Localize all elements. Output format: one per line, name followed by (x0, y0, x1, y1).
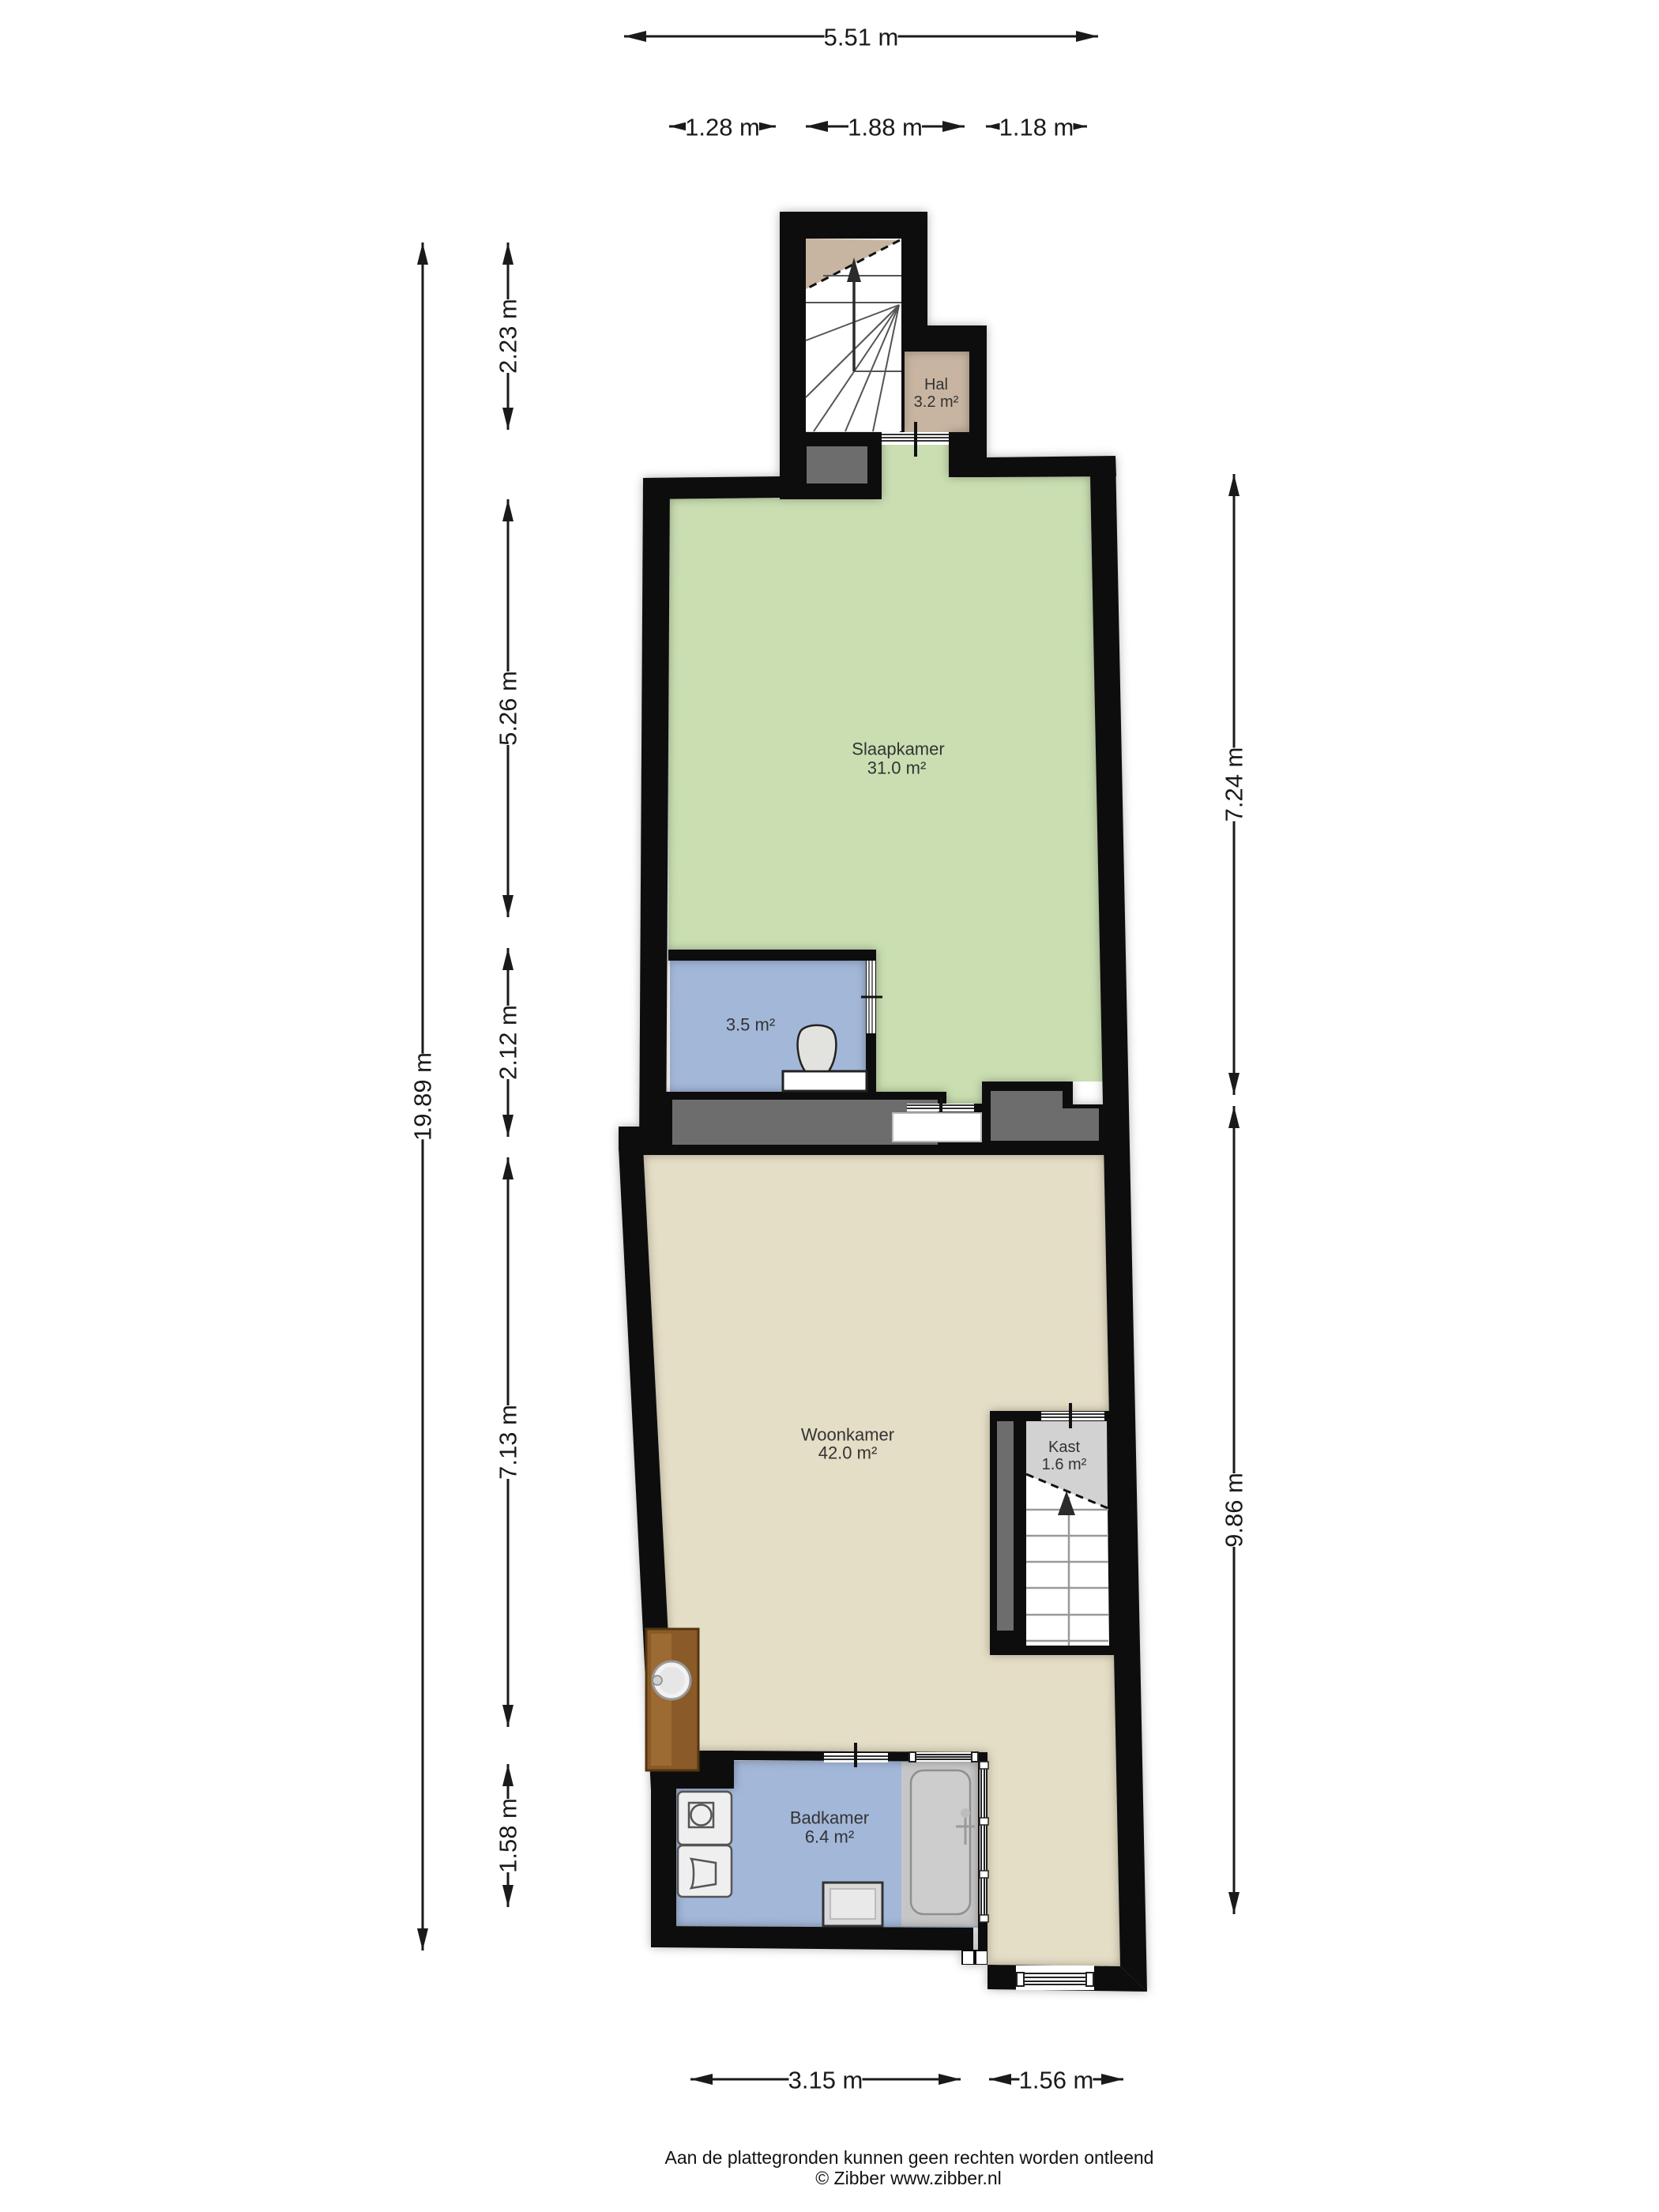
svg-text:5.51 m: 5.51 m (824, 24, 899, 51)
svg-text:1.6 m²: 1.6 m² (1042, 1456, 1087, 1473)
svg-text:© Zibber www.zibber.nl: © Zibber www.zibber.nl (815, 2168, 1002, 2188)
svg-text:3.2 m²: 3.2 m² (914, 393, 959, 411)
svg-text:1.56 m: 1.56 m (1019, 2067, 1094, 2094)
svg-text:3.5 m²: 3.5 m² (726, 1015, 775, 1035)
svg-text:31.0 m²: 31.0 m² (867, 758, 927, 778)
svg-text:Badkamer: Badkamer (790, 1808, 869, 1828)
svg-text:2.23 m: 2.23 m (495, 299, 522, 374)
svg-text:Hal: Hal (924, 376, 948, 393)
svg-text:1.18 m: 1.18 m (999, 114, 1074, 141)
svg-text:42.0 m²: 42.0 m² (818, 1443, 878, 1463)
svg-text:Woonkamer: Woonkamer (801, 1425, 894, 1445)
svg-text:Slaapkamer: Slaapkamer (852, 739, 944, 759)
svg-text:7.13 m: 7.13 m (495, 1405, 522, 1480)
svg-text:Kast: Kast (1048, 1439, 1080, 1456)
svg-text:3.15 m: 3.15 m (788, 2067, 863, 2094)
svg-text:Aan de plattegronden kunnen ge: Aan de plattegronden kunnen geen rechten… (665, 2147, 1154, 2168)
svg-text:1.28 m: 1.28 m (685, 114, 760, 141)
svg-text:19.89 m: 19.89 m (409, 1052, 437, 1141)
svg-text:5.26 m: 5.26 m (495, 671, 522, 746)
svg-text:1.58 m: 1.58 m (495, 1798, 522, 1873)
svg-text:1.88 m: 1.88 m (848, 114, 923, 141)
svg-text:2.12 m: 2.12 m (495, 1005, 522, 1080)
svg-text:7.24 m: 7.24 m (1221, 747, 1248, 822)
svg-text:9.86 m: 9.86 m (1221, 1473, 1248, 1548)
svg-text:6.4 m²: 6.4 m² (805, 1827, 854, 1847)
